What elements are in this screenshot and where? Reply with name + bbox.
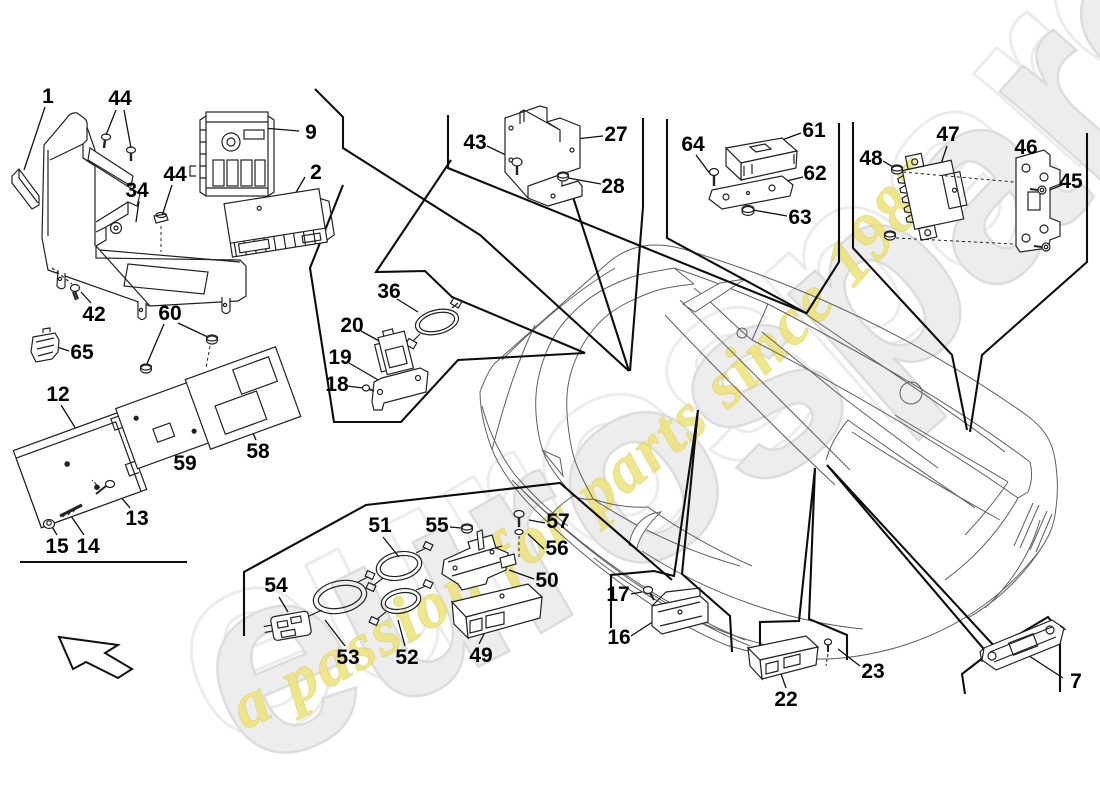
svg-text:44: 44 (108, 87, 132, 110)
svg-text:20: 20 (340, 314, 363, 337)
svg-text:27: 27 (604, 123, 627, 146)
svg-text:64: 64 (681, 133, 705, 156)
svg-text:28: 28 (601, 175, 625, 198)
svg-text:14: 14 (76, 535, 100, 558)
svg-text:53: 53 (336, 646, 359, 669)
svg-text:63: 63 (788, 206, 811, 229)
svg-text:50: 50 (535, 569, 558, 592)
svg-text:19: 19 (328, 346, 351, 369)
svg-text:1: 1 (42, 85, 54, 108)
svg-text:48: 48 (859, 147, 883, 170)
svg-text:56: 56 (545, 537, 568, 560)
svg-text:7: 7 (1070, 670, 1082, 693)
svg-text:61: 61 (802, 119, 826, 142)
svg-text:43: 43 (463, 131, 486, 154)
svg-text:49: 49 (469, 644, 492, 667)
svg-text:52: 52 (395, 646, 418, 669)
svg-text:13: 13 (125, 507, 148, 530)
svg-text:42: 42 (82, 303, 105, 326)
svg-text:51: 51 (368, 514, 392, 537)
svg-text:18: 18 (325, 373, 349, 396)
svg-text:17: 17 (606, 583, 629, 606)
svg-text:58: 58 (246, 440, 270, 463)
svg-text:12: 12 (46, 383, 69, 406)
svg-text:34: 34 (125, 179, 149, 202)
svg-text:16: 16 (607, 626, 630, 649)
svg-text:55: 55 (425, 514, 449, 537)
svg-text:15: 15 (45, 535, 69, 558)
svg-text:47: 47 (936, 123, 959, 146)
svg-text:65: 65 (70, 341, 94, 364)
svg-text:54: 54 (264, 574, 288, 597)
svg-text:22: 22 (774, 688, 797, 711)
svg-text:46: 46 (1014, 136, 1037, 159)
svg-text:9: 9 (305, 121, 317, 144)
svg-text:59: 59 (173, 452, 196, 475)
svg-text:44: 44 (163, 163, 187, 186)
svg-text:36: 36 (377, 280, 400, 303)
svg-text:2: 2 (310, 161, 322, 184)
svg-text:45: 45 (1059, 170, 1083, 193)
svg-text:57: 57 (546, 510, 569, 533)
svg-text:23: 23 (861, 660, 884, 683)
svg-text:62: 62 (803, 162, 826, 185)
svg-text:60: 60 (158, 302, 181, 325)
